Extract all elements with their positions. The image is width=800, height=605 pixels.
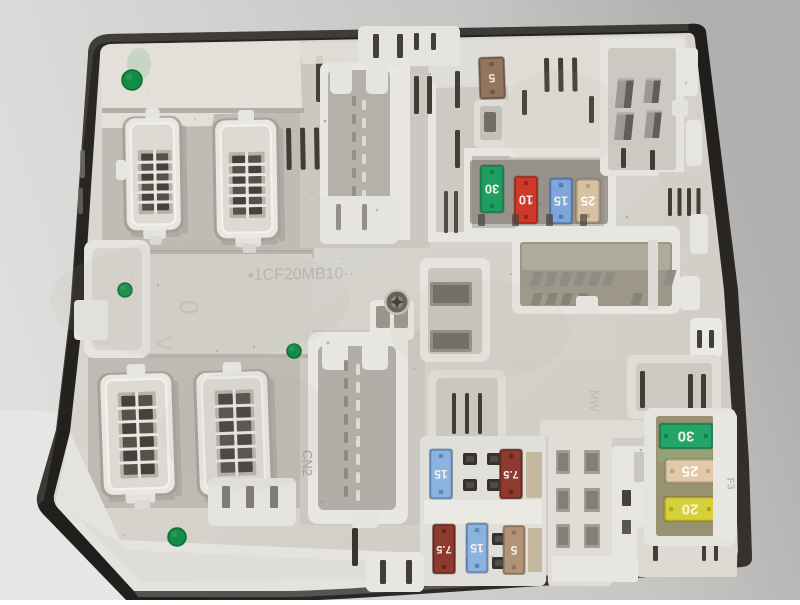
- svg-text:5: 5: [510, 543, 517, 557]
- svg-text:30: 30: [485, 182, 499, 197]
- svg-text:20: 20: [682, 501, 699, 518]
- svg-text:15: 15: [470, 541, 484, 555]
- svg-text:25: 25: [581, 194, 595, 209]
- svg-text:5: 5: [488, 71, 496, 85]
- svg-text:10: 10: [519, 193, 533, 208]
- svg-text:F3: F3: [724, 477, 736, 490]
- svg-text:25: 25: [682, 463, 699, 480]
- svg-text:15: 15: [434, 467, 448, 481]
- svg-text:MW: MW: [587, 390, 601, 412]
- svg-text:7.5: 7.5: [436, 543, 451, 555]
- svg-text:15: 15: [554, 194, 568, 209]
- svg-text:30: 30: [678, 428, 695, 445]
- svg-text:7.5: 7.5: [503, 468, 518, 480]
